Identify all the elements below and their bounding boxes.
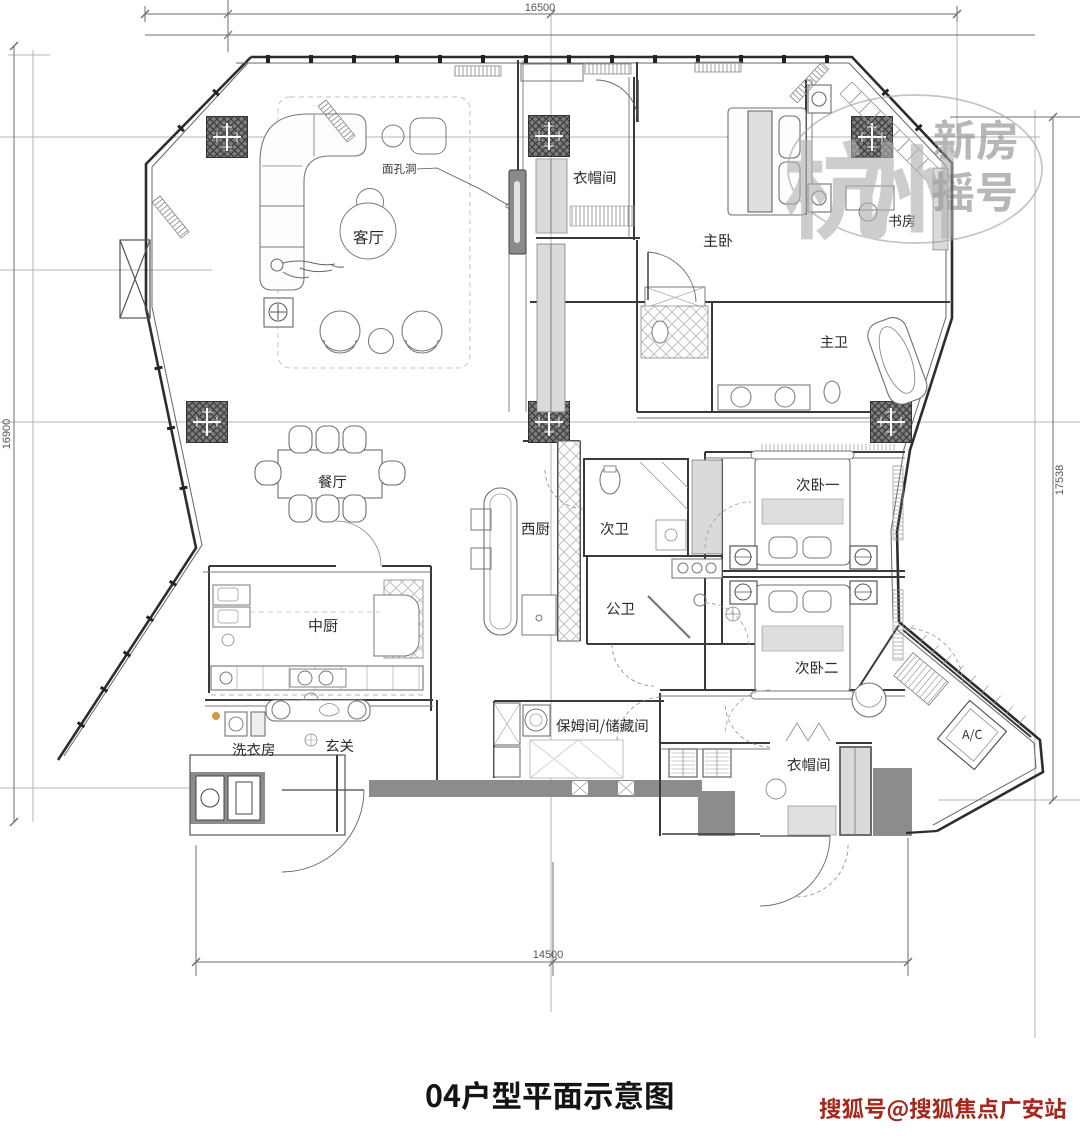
svg-text:16500: 16500	[525, 2, 556, 14]
svg-text:14500: 14500	[533, 949, 564, 961]
svg-text:16900: 16900	[1, 419, 13, 450]
svg-text:17538: 17538	[1054, 465, 1066, 496]
